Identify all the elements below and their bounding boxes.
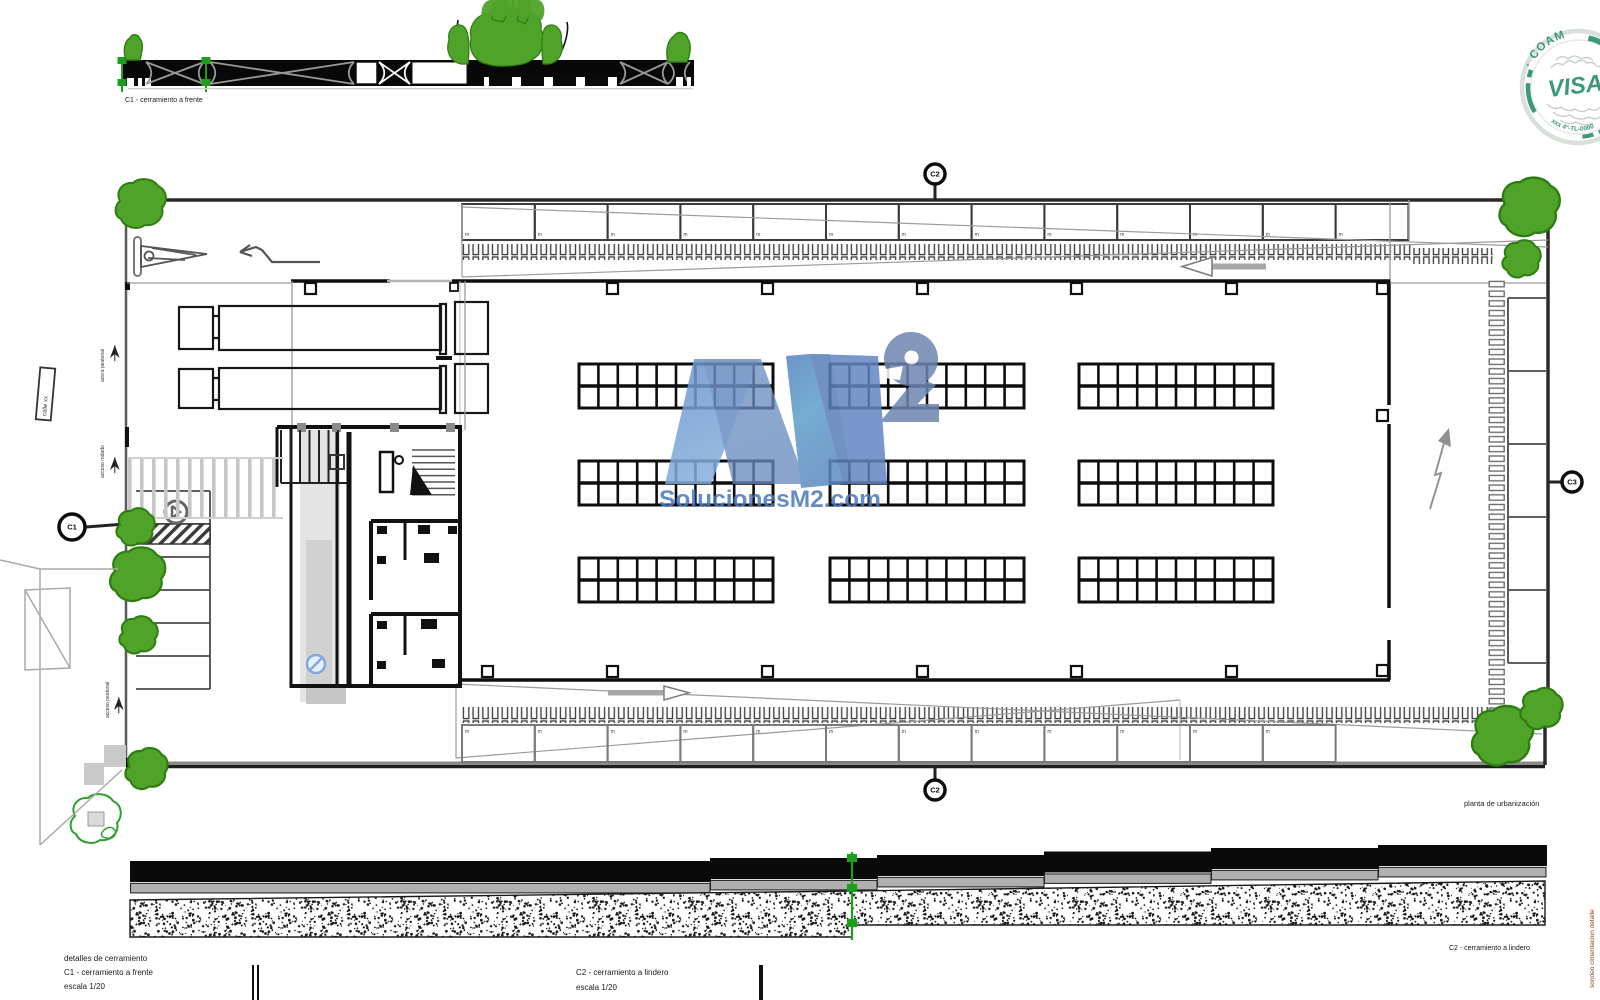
svg-text:SolucionesM2.com: SolucionesM2.com bbox=[659, 486, 881, 513]
svg-text:C1 - cerramiento a frente: C1 - cerramiento a frente bbox=[64, 968, 153, 977]
svg-text:m: m bbox=[829, 729, 833, 735]
svg-text:m: m bbox=[902, 729, 906, 735]
svg-text:m: m bbox=[1120, 729, 1124, 735]
svg-text:m: m bbox=[975, 232, 979, 238]
svg-text:escala 1/20: escala 1/20 bbox=[64, 982, 105, 991]
svg-text:acceso rodado: acceso rodado bbox=[100, 445, 106, 478]
svg-text:planta de urbanización: planta de urbanización bbox=[1464, 799, 1539, 808]
svg-text:m: m bbox=[1193, 232, 1197, 238]
svg-text:m: m bbox=[538, 729, 542, 735]
svg-text:C1 - cerramiento a frente: C1 - cerramiento a frente bbox=[125, 97, 203, 104]
svg-text:C2 - cerramiento a lindero: C2 - cerramiento a lindero bbox=[1449, 945, 1530, 952]
svg-text:C2: C2 bbox=[930, 170, 940, 179]
svg-text:escala 1/20: escala 1/20 bbox=[576, 983, 617, 992]
svg-text:sondeo cimentacion detalle: sondeo cimentacion detalle bbox=[1589, 909, 1596, 988]
svg-text:m: m bbox=[1266, 729, 1270, 735]
svg-text:m: m bbox=[1047, 232, 1051, 238]
svg-text:acera peatonal: acera peatonal bbox=[100, 349, 106, 382]
svg-text:m: m bbox=[1120, 232, 1124, 238]
svg-text:m: m bbox=[465, 729, 469, 735]
svg-text:m: m bbox=[975, 729, 979, 735]
svg-text:C2: C2 bbox=[930, 786, 940, 795]
svg-text:m: m bbox=[1193, 729, 1197, 735]
svg-text:m: m bbox=[538, 232, 542, 238]
svg-text:m: m bbox=[756, 232, 760, 238]
svg-text:m: m bbox=[683, 232, 687, 238]
svg-text:m: m bbox=[756, 729, 760, 735]
svg-text:C3: C3 bbox=[1567, 478, 1577, 487]
svg-text:m: m bbox=[683, 729, 687, 735]
svg-text:acceso peatonal: acceso peatonal bbox=[105, 682, 111, 718]
svg-text:m: m bbox=[1339, 232, 1343, 238]
svg-text:m: m bbox=[902, 232, 906, 238]
svg-text:m: m bbox=[465, 232, 469, 238]
svg-text:m: m bbox=[1047, 729, 1051, 735]
svg-text:m: m bbox=[829, 232, 833, 238]
svg-text:detalles de cerramiento: detalles de cerramiento bbox=[64, 954, 148, 963]
svg-text:C2 - cerramiento a lindero: C2 - cerramiento a lindero bbox=[576, 968, 669, 977]
svg-text:C1: C1 bbox=[67, 523, 77, 532]
svg-text:m: m bbox=[611, 729, 615, 735]
svg-text:m: m bbox=[611, 232, 615, 238]
